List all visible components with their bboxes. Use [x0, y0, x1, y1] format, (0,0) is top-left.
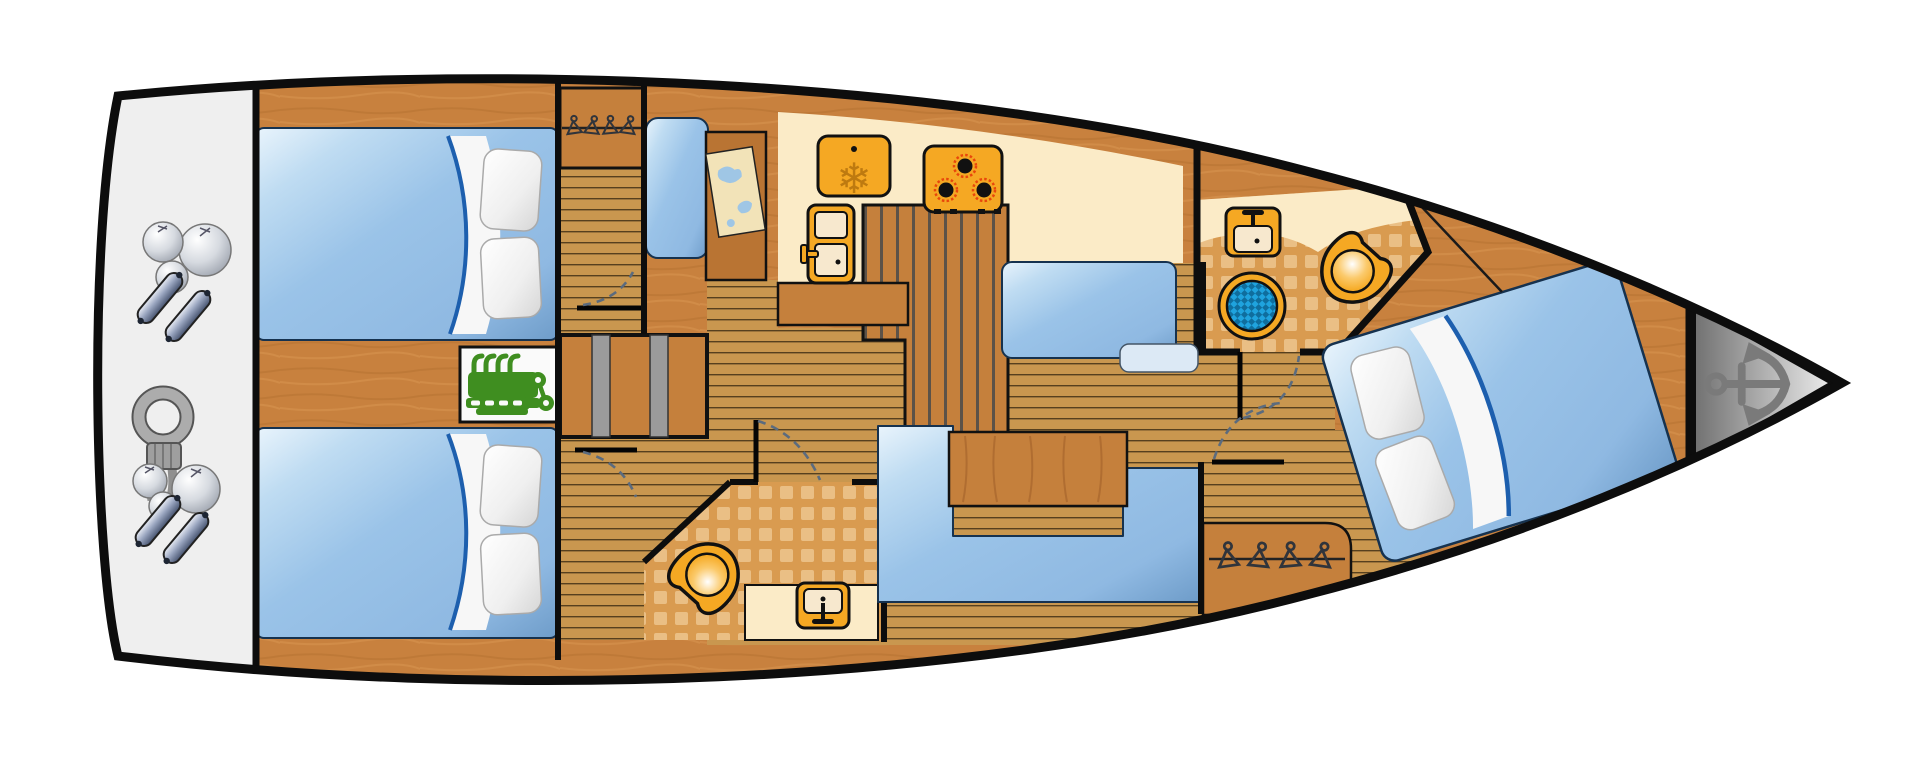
- floor-plan-canvas: ❄: [0, 0, 1920, 760]
- aft-cabin-port: [256, 428, 558, 638]
- stove-burners-icon: [924, 146, 1002, 214]
- anchor-locker: [1692, 302, 1836, 466]
- pillow-icon: [479, 444, 542, 528]
- nav-seat: [646, 118, 708, 258]
- aft-cabin-starboard: [256, 128, 558, 340]
- sink-icon: [797, 583, 849, 628]
- pillow-icon: [480, 533, 542, 616]
- pillow-icon: [479, 148, 542, 232]
- pillow-icon: [480, 237, 542, 320]
- wardrobe-aft: [560, 88, 644, 168]
- companionway-steps: [560, 335, 707, 437]
- engine-compartment: [460, 347, 558, 422]
- galley-shelf: [778, 283, 908, 325]
- corridor-floor-aft-starboard: [558, 168, 644, 337]
- navigation-station: [646, 118, 766, 280]
- boat-floor-plan: ❄: [0, 0, 1920, 760]
- settee-armrest: [1120, 344, 1198, 372]
- snowflake-icon: ❄: [836, 154, 871, 203]
- refrigerator-door-icon: [801, 205, 854, 283]
- salon-table: [949, 432, 1127, 506]
- fridge-freezer-icon: ❄: [818, 136, 890, 203]
- shower-drain-icon: [1219, 273, 1285, 339]
- sink-icon: [1226, 208, 1280, 256]
